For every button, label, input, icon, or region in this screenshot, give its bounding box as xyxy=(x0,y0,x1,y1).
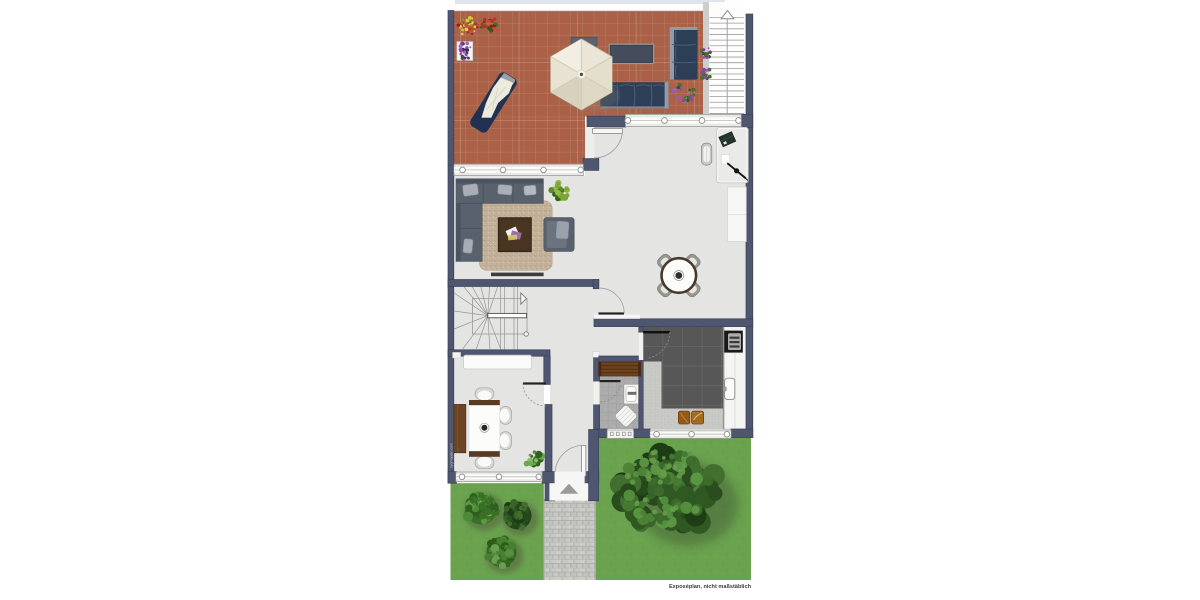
svg-text:sygmaplan.com: sygmaplan.com xyxy=(449,443,453,468)
svg-text:Exposéplan, nicht maßstäblich: Exposéplan, nicht maßstäblich xyxy=(669,584,752,590)
